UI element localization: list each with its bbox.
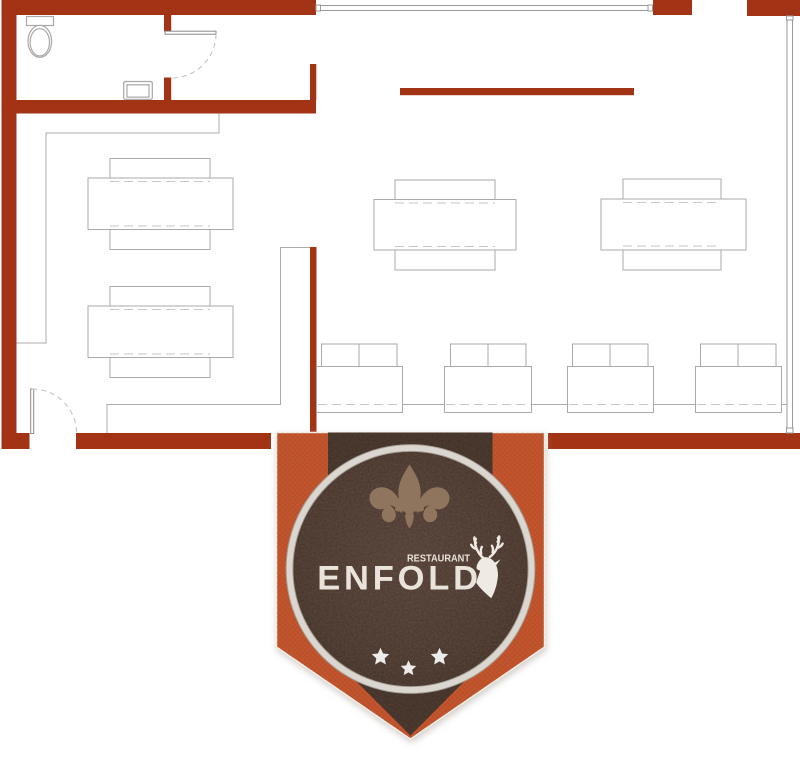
svg-text:ENFOLD: ENFOLD (317, 560, 482, 598)
